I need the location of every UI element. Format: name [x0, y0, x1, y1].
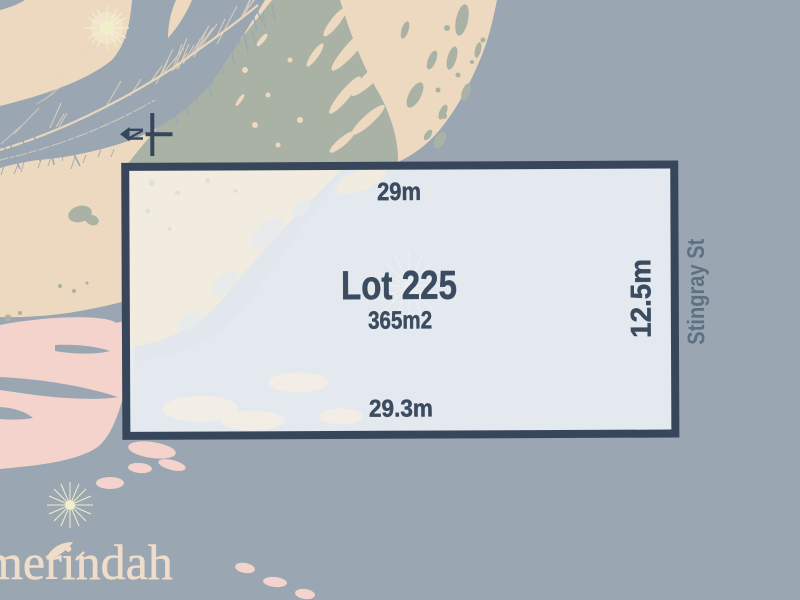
svg-text:Lot 225: Lot 225	[341, 262, 457, 308]
svg-text:N: N	[127, 127, 148, 141]
svg-text:29m: 29m	[377, 178, 421, 206]
svg-text:365m2: 365m2	[368, 307, 432, 334]
svg-text:merindah: merindah	[0, 534, 173, 590]
svg-text:29.3m: 29.3m	[369, 395, 433, 422]
svg-text:Stingray St: Stingray St	[683, 239, 710, 345]
svg-text:12.5m: 12.5m	[625, 259, 657, 338]
